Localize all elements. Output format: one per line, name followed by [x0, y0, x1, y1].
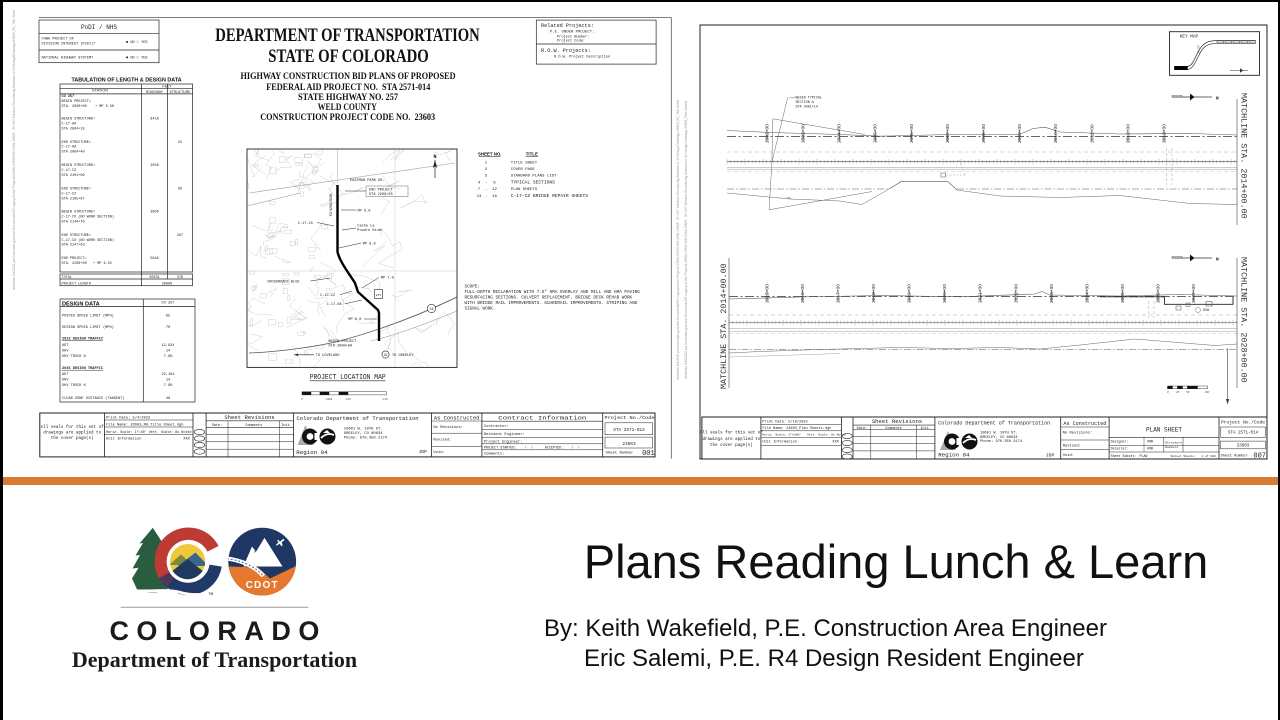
svg-text:END STRUCTURE=: END STRUCTURE=: [62, 234, 91, 238]
svg-text:0: 0: [301, 397, 303, 401]
svg-text:COLORADO: COLORADO: [109, 616, 327, 646]
svg-text:2058: 2058: [150, 164, 158, 168]
svg-text:CLEAR ZONE DISTANCE (TANGENT): CLEAR ZONE DISTANCE (TANGENT): [62, 396, 125, 401]
svg-text:Phone: 970.350.2174: Phone: 970.350.2174: [344, 436, 388, 441]
svg-text:Region 04: Region 04: [296, 449, 328, 456]
svg-text:10601 W. 10TH ST.: 10601 W. 10TH ST.: [344, 427, 383, 431]
svg-text:FEET: FEET: [162, 85, 172, 89]
svg-text:2022 DESIGN TRAFFIC: 2022 DESIGN TRAFFIC: [62, 338, 104, 342]
svg-text:Numbers: Numbers: [1165, 445, 1178, 449]
svg-text:N: N: [1216, 257, 1219, 263]
svg-text:MP 8.0: MP 8.0: [363, 243, 376, 247]
svg-text:Project Engineer:: Project Engineer:: [484, 439, 523, 444]
svg-text:20231: 20231: [149, 276, 160, 280]
svg-text:14: 14: [166, 379, 170, 383]
svg-text:STA. 2206+00 + MP 9.52: STA. 2206+00 + MP 9.52: [62, 262, 112, 266]
svg-text:Detailer:: Detailer:: [1111, 447, 1129, 451]
svg-text:14: 14: [166, 350, 170, 354]
svg-text:Project Number:: Project Number:: [557, 34, 589, 39]
svg-text:2017+00: 2017+00: [836, 284, 842, 303]
svg-text:P.E. UNDER PROJECT:: P.E. UNDER PROJECT:: [550, 31, 594, 35]
svg-text:MP 9.0: MP 9.0: [358, 210, 371, 214]
svg-text:BEGIN PROJECT=: BEGIN PROJECT=: [62, 100, 91, 104]
svg-text:Poudre River: Poudre River: [357, 228, 383, 233]
svg-text:COVER PAGE: COVER PAGE: [511, 168, 536, 172]
svg-text:TM: TM: [209, 592, 214, 596]
svg-text:ADT: ADT: [62, 373, 69, 377]
svg-text:TO WINDSOR: TO WINDSOR: [329, 193, 333, 217]
svg-text:34: 34: [384, 353, 388, 357]
svg-text:JDP: JDP: [418, 449, 427, 455]
svg-text:Horiz. Scale: 1"=100' Vert.: Horiz. Scale: 1"=100' Vert. Scale: As No…: [762, 433, 846, 437]
svg-text:22,164: 22,164: [162, 373, 175, 377]
svg-text:Colorado Department of Tran: Colorado Department of Transportation: [938, 421, 1050, 427]
svg-text:Unit Information: Unit Information: [762, 439, 797, 444]
svg-text:WITH BRIDGE RAIL IMPROVEMENTS.: WITH BRIDGE RAIL IMPROVEMENTS. GUARDRAIL…: [465, 301, 638, 306]
svg-text:STA 2147+63: STA 2147+63: [62, 244, 85, 248]
svg-text:3: 3: [485, 174, 488, 178]
svg-text:Project Code:: Project Code:: [557, 39, 585, 44]
svg-text:FHWA PROJECT OF: FHWA PROJECT OF: [42, 38, 74, 42]
svg-text:7.9%: 7.9%: [164, 355, 173, 359]
svg-text:Department of Transportation: Department of Transportation: [72, 647, 357, 672]
svg-text:2008+00: 2008+00: [981, 124, 987, 143]
svg-text:MATCHLINE STA. 2014+00.00: MATCHLINE STA. 2014+00.00: [1239, 93, 1249, 219]
svg-text:drawings are applied to: drawings are applied to: [702, 437, 760, 442]
svg-text:RESURFACING SECTIONS. CULVERT: RESURFACING SECTIONS. CULVERT REPLACEMEN…: [465, 295, 633, 300]
svg-text:Date:: Date:: [857, 427, 868, 431]
svg-text:KEY MAP: KEY MAP: [1180, 35, 1199, 40]
svg-text:TABULATION OF LENGTH & DESIGN: TABULATION OF LENGTH & DESIGN DATA: [71, 78, 181, 84]
svg-text:2022+00: 2022+00: [1013, 284, 1019, 303]
svg-text:69: 69: [178, 188, 182, 192]
svg-text:N: N: [1216, 96, 1219, 102]
svg-text:Contract Information: Contract Information: [498, 414, 586, 421]
svg-text:GREELEY, CO 80634: GREELEY, CO 80634: [980, 436, 1018, 440]
svg-text:DHV: DHV: [62, 379, 69, 383]
svg-text:END PROJECT=: END PROJECT=: [62, 257, 87, 261]
svg-text:the cover page(s): the cover page(s): [710, 443, 753, 448]
svg-text:3909: 3909: [150, 211, 158, 215]
svg-text:Revised:: Revised:: [1063, 443, 1081, 448]
svg-text:2011+00: 2011+00: [1089, 124, 1095, 143]
svg-text:18: 18: [492, 195, 497, 199]
svg-text:ADT: ADT: [62, 344, 69, 348]
svg-text:2003+00: 2003+00: [801, 124, 807, 143]
svg-text:Init.: Init.: [281, 423, 292, 428]
svg-text:Sheet Revisions: Sheet Revisions: [224, 414, 274, 421]
svg-text:mckelvas 5/4/2022 pw:\\colorad: mckelvas 5/4/2022 pw:\\colorado.gov\cdot…: [676, 100, 680, 381]
svg-text:CO 257: CO 257: [62, 95, 75, 99]
svg-text:2009+00: 2009+00: [1017, 124, 1023, 143]
svg-text:MP 7.0: MP 7.0: [381, 277, 394, 281]
svg-text:Void:: Void:: [433, 450, 444, 455]
svg-text:STA 2144+76: STA 2144+76: [62, 221, 85, 225]
svg-text:-: -: [485, 195, 487, 199]
svg-text:378: 378: [177, 276, 183, 280]
svg-text:2026+00: 2026+00: [1155, 284, 1161, 303]
svg-text:C-17-CX (NO WORK SECTION): C-17-CX (NO WORK SECTION): [62, 238, 115, 243]
svg-text:STA 2001+14: STA 2001+14: [796, 106, 818, 110]
svg-text:7.9%: 7.9%: [164, 384, 173, 388]
svg-text:DEPARTMENT OF TRANSPORTATION: DEPARTMENT OF TRANSPORTATION: [215, 25, 480, 46]
svg-text:PLAN: PLAN: [1140, 454, 1148, 458]
svg-text:STA 2105+67: STA 2105+67: [62, 197, 85, 201]
svg-text:Comments: Comments: [245, 424, 262, 428]
svg-text:STA 2206+25: STA 2206+25: [369, 193, 393, 197]
svg-text:0': 0': [1167, 390, 1169, 394]
svg-text:DHV TRUCK %: DHV TRUCK %: [62, 355, 87, 359]
svg-text:Sheet Revisions: Sheet Revisions: [872, 418, 922, 425]
svg-text:Init.: Init.: [920, 426, 931, 431]
svg-text:STA. 2000+00 + MP 5.50: STA. 2000+00 + MP 5.50: [62, 105, 115, 109]
svg-text:CROSSROADS BLVD.: CROSSROADS BLVD.: [267, 280, 302, 284]
svg-text:13: 13: [477, 195, 482, 199]
svg-text:File Name: 23603_R0_Title Shee: File Name: 23603_R0_Title Sheet.dgn: [106, 423, 183, 428]
svg-text:Comments: Comments: [885, 427, 902, 431]
svg-text:BEGIN STRUCTURE=: BEGIN STRUCTURE=: [62, 118, 96, 122]
svg-text:SECTION A: SECTION A: [796, 101, 815, 105]
svg-text:the cover page(s): the cover page(s): [51, 436, 94, 441]
svg-text:007: 007: [1253, 453, 1266, 461]
svg-text:2010+00: 2010+00: [1053, 124, 1059, 143]
svg-text:STANDARD PLANS LIST: STANDARD PLANS LIST: [511, 174, 557, 178]
svg-text:CDOT: CDOT: [246, 580, 279, 591]
svg-text:DHV TRUCK %: DHV TRUCK %: [62, 384, 87, 388]
svg-text:STATE HIGHWAY NO. 257: STATE HIGHWAY NO. 257: [298, 92, 398, 102]
svg-text:20609: 20609: [162, 283, 173, 287]
svg-text:2020+00: 2020+00: [942, 284, 948, 303]
svg-text:CO 257: CO 257: [162, 302, 175, 306]
svg-text:SIGNAL WORK.: SIGNAL WORK.: [465, 306, 496, 311]
svg-text:TOTAL: TOTAL: [62, 276, 73, 280]
svg-text:23603: 23603: [1237, 445, 1250, 449]
svg-text:Cache La: Cache La: [357, 224, 375, 229]
svg-text:STATE OF COLORADO: STATE OF COLORADO: [268, 46, 429, 67]
svg-text:WELD COUNTY: WELD COUNTY: [318, 102, 377, 112]
svg-text:PLAN SHEETS: PLAN SHEETS: [511, 188, 538, 192]
svg-text:50': 50': [1186, 390, 1190, 394]
svg-text:DHV: DHV: [62, 350, 69, 354]
svg-text:Region 04: Region 04: [938, 452, 970, 459]
svg-text:BEGIN STRUCTURE=: BEGIN STRUCTURE=: [62, 211, 96, 215]
svg-text:All seals for this set of: All seals for this set of: [41, 425, 104, 430]
svg-text:Horiz. Scale: 1"=40' Vert. Sca: Horiz. Scale: 1"=40' Vert. Scale: As Not…: [106, 430, 191, 435]
svg-text:Sheet Number: Sheet Number: [1221, 453, 1248, 458]
svg-text:Project No./Code: Project No./Code: [605, 416, 655, 421]
svg-text:XXX: XXX: [183, 438, 190, 442]
svg-text:7: 7: [478, 188, 481, 192]
svg-text:2024+00: 2024+00: [1084, 284, 1090, 303]
svg-text:2007+00: 2007+00: [945, 124, 951, 143]
svg-text:34: 34: [429, 308, 433, 312]
svg-text:2004+00: 2004+00: [837, 124, 843, 143]
svg-text:2006+00: 2006+00: [909, 124, 915, 143]
svg-text:Phone: 970.350.2174: Phone: 970.350.2174: [980, 439, 1023, 444]
svg-text:2025+00: 2025+00: [1120, 284, 1126, 303]
svg-text:FULL-DEPTH RECLAMATION WITH 7.: FULL-DEPTH RECLAMATION WITH 7.5" HMA OVE…: [465, 290, 641, 295]
svg-text:END PROJECT: END PROJECT: [369, 189, 394, 193]
svg-text:1: 1: [485, 161, 488, 165]
svg-text:PROJECT LENGTH: PROJECT LENGTH: [62, 283, 91, 287]
svg-text:■ NO □ YES: ■ NO □ YES: [126, 40, 148, 45]
svg-text:Designer:: Designer:: [1111, 440, 1129, 444]
svg-text:TO GREELEY: TO GREELEY: [392, 354, 414, 358]
svg-text:NATIONAL HIGHWAY SYSTEM?: NATIONAL HIGHWAY SYSTEM?: [42, 57, 94, 61]
svg-text:mckelvas 5/4/2022 pw:\\colorad: mckelvas 5/4/2022 pw:\\colorado.gov\cdot…: [12, 10, 16, 291]
svg-text:Print Date: 5/4/2022: Print Date: 5/4/2022: [106, 416, 150, 421]
svg-text:2013+00: 2013+00: [1162, 124, 1168, 143]
svg-text:POSTED SPEED LIMIT (MPH): POSTED SPEED LIMIT (MPH): [62, 314, 114, 319]
svg-text:CONSTRUCTION PROJECT CODE NO.: CONSTRUCTION PROJECT CODE NO. 23603: [260, 112, 435, 122]
svg-text:HIGHWAY CONSTRUCTION BID PLANS: HIGHWAY CONSTRUCTION BID PLANS OF PROPOS…: [241, 71, 456, 81]
svg-text:2021+00: 2021+00: [978, 284, 984, 303]
svg-text:KMK: KMK: [1147, 440, 1153, 444]
svg-text:C-17-0A: C-17-0A: [327, 303, 343, 307]
svg-text:001: 001: [642, 450, 655, 458]
svg-text:6: 6: [493, 181, 496, 185]
svg-text:Date:: Date:: [212, 424, 223, 428]
svg-text:4: 4: [478, 181, 481, 185]
svg-text:C-17-CZ BRIDGE REPAIR SHEETS: C-17-CZ BRIDGE REPAIR SHEETS: [511, 193, 588, 199]
svg-text:1 MI: 1 MI: [345, 397, 350, 401]
svg-text:SH 257: SH 257: [1197, 44, 1201, 53]
svg-text:Project No./Code: Project No./Code: [1221, 421, 1265, 426]
svg-text:C-17-0A: C-17-0A: [62, 146, 78, 150]
svg-text:PLAN SHEET: PLAN SHEET: [1146, 426, 1182, 434]
svg-text:ROADWAY: ROADWAY: [146, 90, 164, 94]
svg-text:23603: 23603: [622, 442, 636, 447]
svg-text:Sheet Subset:: Sheet Subset:: [1111, 454, 1137, 458]
svg-text:EASTMAN PARK DR.: EASTMAN PARK DR.: [350, 179, 385, 183]
svg-text:MATCHLINE STA. 2028+00.00: MATCHLINE STA. 2028+00.00: [1239, 257, 1249, 383]
svg-text:100': 100': [1205, 390, 1210, 394]
svg-text:287: 287: [177, 234, 183, 238]
svg-text:R.O.W. Project Description: R.O.W. Project Description: [554, 55, 610, 60]
svg-text:TYPICAL SECTIONS: TYPICAL SECTIONS: [511, 179, 555, 185]
svg-text:STRUCTURE: STRUCTURE: [170, 90, 192, 94]
svg-text:C-17-CZ: C-17-CZ: [62, 192, 77, 196]
svg-text:Void:: Void:: [1063, 453, 1074, 458]
svg-text:C-17-0A: C-17-0A: [62, 123, 78, 127]
svg-text:STA 2064+40: STA 2064+40: [62, 151, 85, 155]
svg-text:JDP: JDP: [1046, 452, 1055, 458]
svg-text:END STRUCTURE=: END STRUCTURE=: [62, 141, 91, 145]
svg-text:48: 48: [166, 397, 170, 401]
svg-text:1 of 006: 1 of 006: [1201, 454, 1216, 458]
svg-text:STA 2000+00: STA 2000+00: [328, 345, 352, 349]
svg-text:Structure: Structure: [1165, 440, 1182, 444]
svg-text:2012+00: 2012+00: [1125, 124, 1131, 143]
svg-text:All seals for this set of: All seals for this set of: [700, 430, 763, 435]
svg-text:2: 2: [485, 168, 488, 172]
svg-text:70: 70: [166, 326, 170, 330]
svg-text:PROJECT STARTED: / /: PROJECT STARTED: / / ACCEPTED: / /: [484, 445, 580, 450]
svg-text:BEGIN PROJECT: BEGIN PROJECT: [328, 340, 357, 344]
svg-text:5846: 5846: [150, 257, 158, 261]
svg-text:No Revisions:: No Revisions:: [433, 425, 463, 430]
svg-text:END STRUCTURE=: END STRUCTURE=: [62, 188, 91, 192]
svg-text:Sheet Number: Sheet Number: [606, 450, 634, 455]
svg-text:STATION: STATION: [92, 89, 108, 93]
svg-text:R.O.W. Projects:: R.O.W. Projects:: [541, 48, 591, 54]
svg-text:65: 65: [166, 315, 170, 319]
svg-text:BEGIN STRUCTURE=: BEGIN STRUCTURE=: [62, 164, 96, 168]
svg-text:12,924: 12,924: [162, 344, 175, 348]
svg-text:TO LOVELAND: TO LOVELAND: [316, 354, 340, 358]
svg-text:MATCHLINE STA. 2014+00.00: MATCHLINE STA. 2014+00.00: [719, 263, 729, 389]
svg-text:2018+00: 2018+00: [871, 284, 877, 303]
svg-text:2019+00: 2019+00: [907, 284, 913, 303]
svg-text:SHEET NO.: SHEET NO.: [478, 151, 502, 156]
svg-text:STA 2064+18: STA 2064+18: [62, 127, 85, 131]
svg-text:KMK: KMK: [1147, 447, 1153, 451]
svg-text:Revised:: Revised:: [433, 438, 451, 443]
svg-text:mckelvas 5/16/2022 pw:\\colora: mckelvas 5/16/2022 pw:\\colorado.gov\cdo…: [684, 100, 688, 379]
svg-text:Subset Sheets:: Subset Sheets:: [1171, 454, 1196, 458]
svg-text:22: 22: [178, 141, 182, 145]
svg-text:Related Projects:: Related Projects:: [541, 23, 594, 29]
svg-text:File Name: 23603_Plan Sheets.d: File Name: 23603_Plan Sheets.dgn: [762, 426, 831, 431]
svg-text:As Constructed: As Constructed: [1063, 421, 1106, 427]
svg-text:GREELEY, CO 80634: GREELEY, CO 80634: [344, 432, 383, 436]
svg-text:drawings are applied to: drawings are applied to: [43, 430, 101, 435]
svg-text:C-17-CZ: C-17-CZ: [62, 169, 77, 173]
svg-text:DESIGN SPEED LIMIT (MPH): DESIGN SPEED LIMIT (MPH): [62, 325, 114, 330]
svg-text:-: -: [485, 188, 487, 192]
svg-text:257: 257: [376, 294, 382, 297]
svg-text:TITLE SHEET: TITLE SHEET: [511, 161, 538, 165]
svg-text:MP 6.0: MP 6.0: [348, 318, 361, 322]
svg-text:C-17-CX (NO WORK SECTION): C-17-CX (NO WORK SECTION): [62, 215, 115, 220]
svg-text:TITLE: TITLE: [526, 151, 538, 156]
svg-text:2005+00: 2005+00: [873, 124, 879, 143]
svg-text:2015+00: 2015+00: [764, 284, 770, 303]
svg-text:STA 2571-014: STA 2571-014: [1228, 432, 1259, 436]
svg-text:N: N: [433, 154, 436, 160]
svg-text:XXX: XXX: [832, 440, 839, 444]
svg-text:STA 2571-014: STA 2571-014: [613, 428, 645, 433]
svg-text:DIVISION INTEREST (PoDI)?: DIVISION INTEREST (PoDI)?: [42, 42, 96, 47]
svg-text:-: -: [485, 181, 487, 185]
svg-text:2045 DESIGN TRAFFIC: 2045 DESIGN TRAFFIC: [62, 367, 104, 371]
svg-text:ROW: ROW: [1203, 309, 1210, 313]
svg-text:PoDI / NHS: PoDI / NHS: [81, 24, 117, 31]
svg-text:2016+00: 2016+00: [800, 284, 806, 303]
svg-text:Comments:: Comments:: [484, 453, 505, 457]
svg-text:FEDERAL AID PROJECT NO. STA 2: FEDERAL AID PROJECT NO. STA 2571-014: [266, 82, 430, 92]
svg-text:25': 25': [1176, 390, 1180, 394]
svg-text:1/2MI: 1/2MI: [326, 397, 333, 401]
svg-text:2 MI: 2 MI: [382, 397, 387, 401]
svg-text:BEGIN TYPICAL: BEGIN TYPICAL: [796, 97, 822, 101]
svg-text:Resident Engineer:: Resident Engineer:: [484, 432, 525, 437]
svg-text:Contractor:: Contractor:: [484, 424, 509, 429]
svg-text:No Revisions:: No Revisions:: [1063, 430, 1093, 435]
svg-text:STA 2101+09: STA 2101+09: [62, 174, 85, 178]
svg-text:SCOPE:: SCOPE:: [465, 284, 480, 289]
svg-text:8418: 8418: [150, 118, 158, 122]
svg-text:■ NO □ YES: ■ NO □ YES: [126, 56, 148, 61]
svg-text:Colorado Department of Tran: Colorado Department of Transportation: [297, 416, 419, 422]
svg-text:DESIGN DATA: DESIGN DATA: [62, 301, 100, 307]
svg-text:C-17-CZ: C-17-CZ: [320, 294, 336, 298]
svg-text:C-17-CX: C-17-CX: [298, 222, 314, 226]
svg-text:Print Date: 5/16/2022: Print Date: 5/16/2022: [762, 420, 807, 425]
svg-text:As Constructed: As Constructed: [434, 415, 480, 421]
svg-text:12: 12: [492, 188, 497, 192]
svg-text:2002+00: 2002+00: [764, 124, 770, 143]
svg-text:Unit Information: Unit Information: [106, 437, 141, 442]
svg-text:2027+00: 2027+00: [1191, 284, 1197, 303]
svg-text:2023+00: 2023+00: [1049, 284, 1055, 303]
